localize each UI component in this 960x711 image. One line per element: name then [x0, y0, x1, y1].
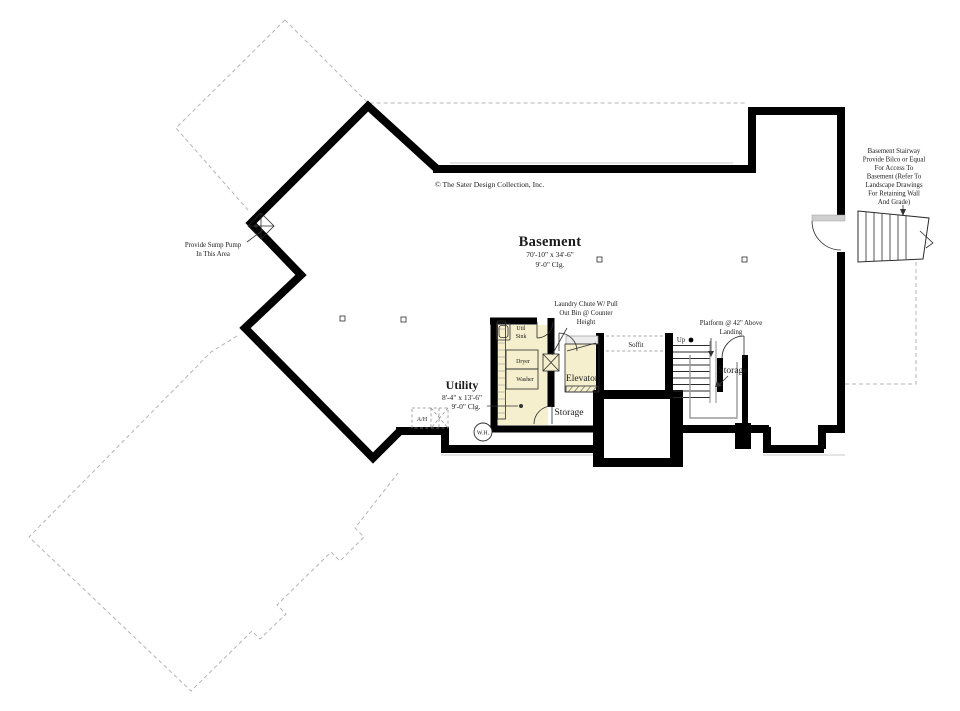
laundry-note: Laundry Chute W/ Pull Out Bin @ Counter …: [554, 301, 618, 326]
washer-label: Washer: [516, 377, 534, 383]
laundry-note-line: Out Bin @ Counter: [559, 310, 613, 317]
basement-ceiling: 9'-0" Clg.: [536, 260, 565, 269]
elevator-label: Elevator: [566, 374, 599, 384]
dashed-outline-top: [285, 20, 745, 103]
upper-floor-dashed-outline: [29, 20, 916, 691]
utility-ceiling: 9'-0" Clg.: [452, 402, 481, 411]
sump-pump-dot: [254, 224, 257, 227]
utility-clg-leader-dot: [519, 404, 523, 408]
platform-note-line: Landing: [720, 329, 743, 336]
air-handler-detail: [431, 408, 448, 428]
stair-up-dot: [689, 338, 694, 343]
column-icon: [401, 317, 406, 322]
storage-under-stair-label: Storage: [718, 366, 747, 376]
column-icon: [742, 257, 747, 262]
exterior-stair-outline: [858, 211, 929, 262]
dryer-label: Dryer: [516, 359, 530, 365]
stairway-note-line: Basement Stairway: [868, 148, 921, 155]
stair-treads: [673, 346, 710, 398]
util-sink-label-2: Sink: [516, 334, 527, 340]
laundry-note-line: Laundry Chute W/ Pull: [554, 301, 618, 308]
up-label: Up: [677, 337, 686, 344]
exterior-stair-treads: [866, 212, 906, 262]
platform-note: Platform @ 42" Above Landing: [700, 320, 762, 336]
air-handler-label: A/H: [417, 417, 428, 423]
text-labels: © The Sater Design Collection, Inc. Base…: [185, 148, 925, 437]
stair-platform-outline: [690, 355, 737, 418]
shaft-void: [604, 399, 670, 458]
basement-dims: 70'-10" x 34'-6": [526, 250, 574, 259]
column-icon: [597, 257, 602, 262]
stairway-note-line: Provide Bilco or Equal: [863, 157, 926, 164]
interior-stair: [673, 336, 744, 418]
laundry-note-line: Height: [577, 319, 596, 326]
sump-note: Provide Sump Pump In This Area: [185, 242, 242, 258]
copyright-text: © The Sater Design Collection, Inc.: [435, 180, 544, 189]
storage-lobby-label: Storage: [554, 408, 583, 418]
dashed-outline-bottom-left-wing: [29, 336, 398, 691]
soffit-label: Soffit: [628, 342, 643, 349]
basement-room-name: Basement: [519, 234, 582, 250]
water-heater-label: W.H.: [477, 431, 490, 437]
column-icon: [340, 316, 345, 321]
elevator-fill: [565, 344, 599, 392]
floor-plan-svg: © The Sater Design Collection, Inc. Base…: [0, 0, 960, 711]
stairway-note-line: And Grade): [878, 199, 910, 206]
stairway-note-line: Landscape Drawings: [865, 182, 923, 189]
dashed-outline-right: [845, 263, 916, 384]
sump-note-line: In This Area: [196, 251, 230, 258]
utility-room-name: Utility: [446, 378, 479, 392]
storage-door-arc: [722, 336, 744, 358]
platform-note-arrowhead: [708, 351, 714, 357]
platform-note-line: Platform @ 42" Above: [700, 320, 762, 327]
stairway-note: Basement Stairway Provide Bilco or Equal…: [863, 148, 926, 206]
sump-note-line: Provide Sump Pump: [185, 242, 242, 249]
util-sink-label-1: Util: [516, 326, 526, 332]
stairway-note-line: For Access To: [875, 165, 914, 172]
utility-dims: 8'-4" x 13'-6": [442, 393, 482, 402]
exterior-stairway: [812, 205, 933, 384]
stairway-note-line: Basement (Refer To: [867, 174, 922, 181]
dashed-outline-top-left: [176, 20, 285, 210]
floor-plan-sheet: © The Sater Design Collection, Inc. Base…: [0, 0, 960, 711]
basement-door-leaf: [812, 215, 845, 221]
wall-west-zigzag: [245, 106, 437, 458]
basement-door-arc: [812, 221, 841, 250]
stairway-note-line: For Retaining Wall: [868, 191, 920, 198]
